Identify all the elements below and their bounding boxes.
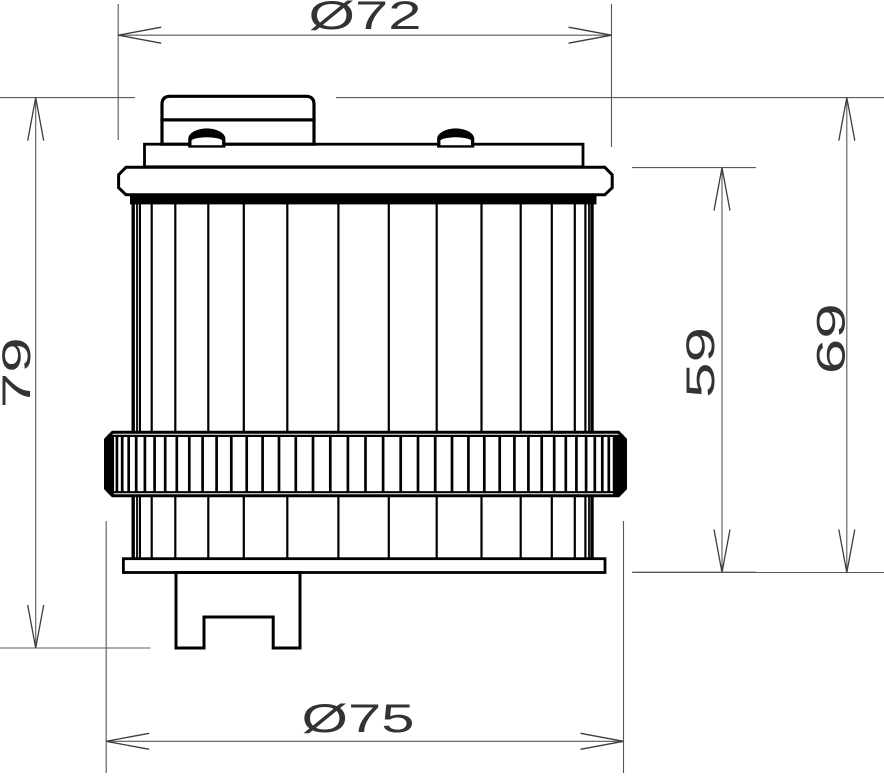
svg-text:Ø75: Ø75 bbox=[302, 697, 415, 741]
svg-text:69: 69 bbox=[809, 303, 853, 374]
svg-text:Ø72: Ø72 bbox=[309, 0, 422, 38]
svg-text:79: 79 bbox=[0, 337, 39, 408]
svg-text:59: 59 bbox=[679, 327, 723, 398]
